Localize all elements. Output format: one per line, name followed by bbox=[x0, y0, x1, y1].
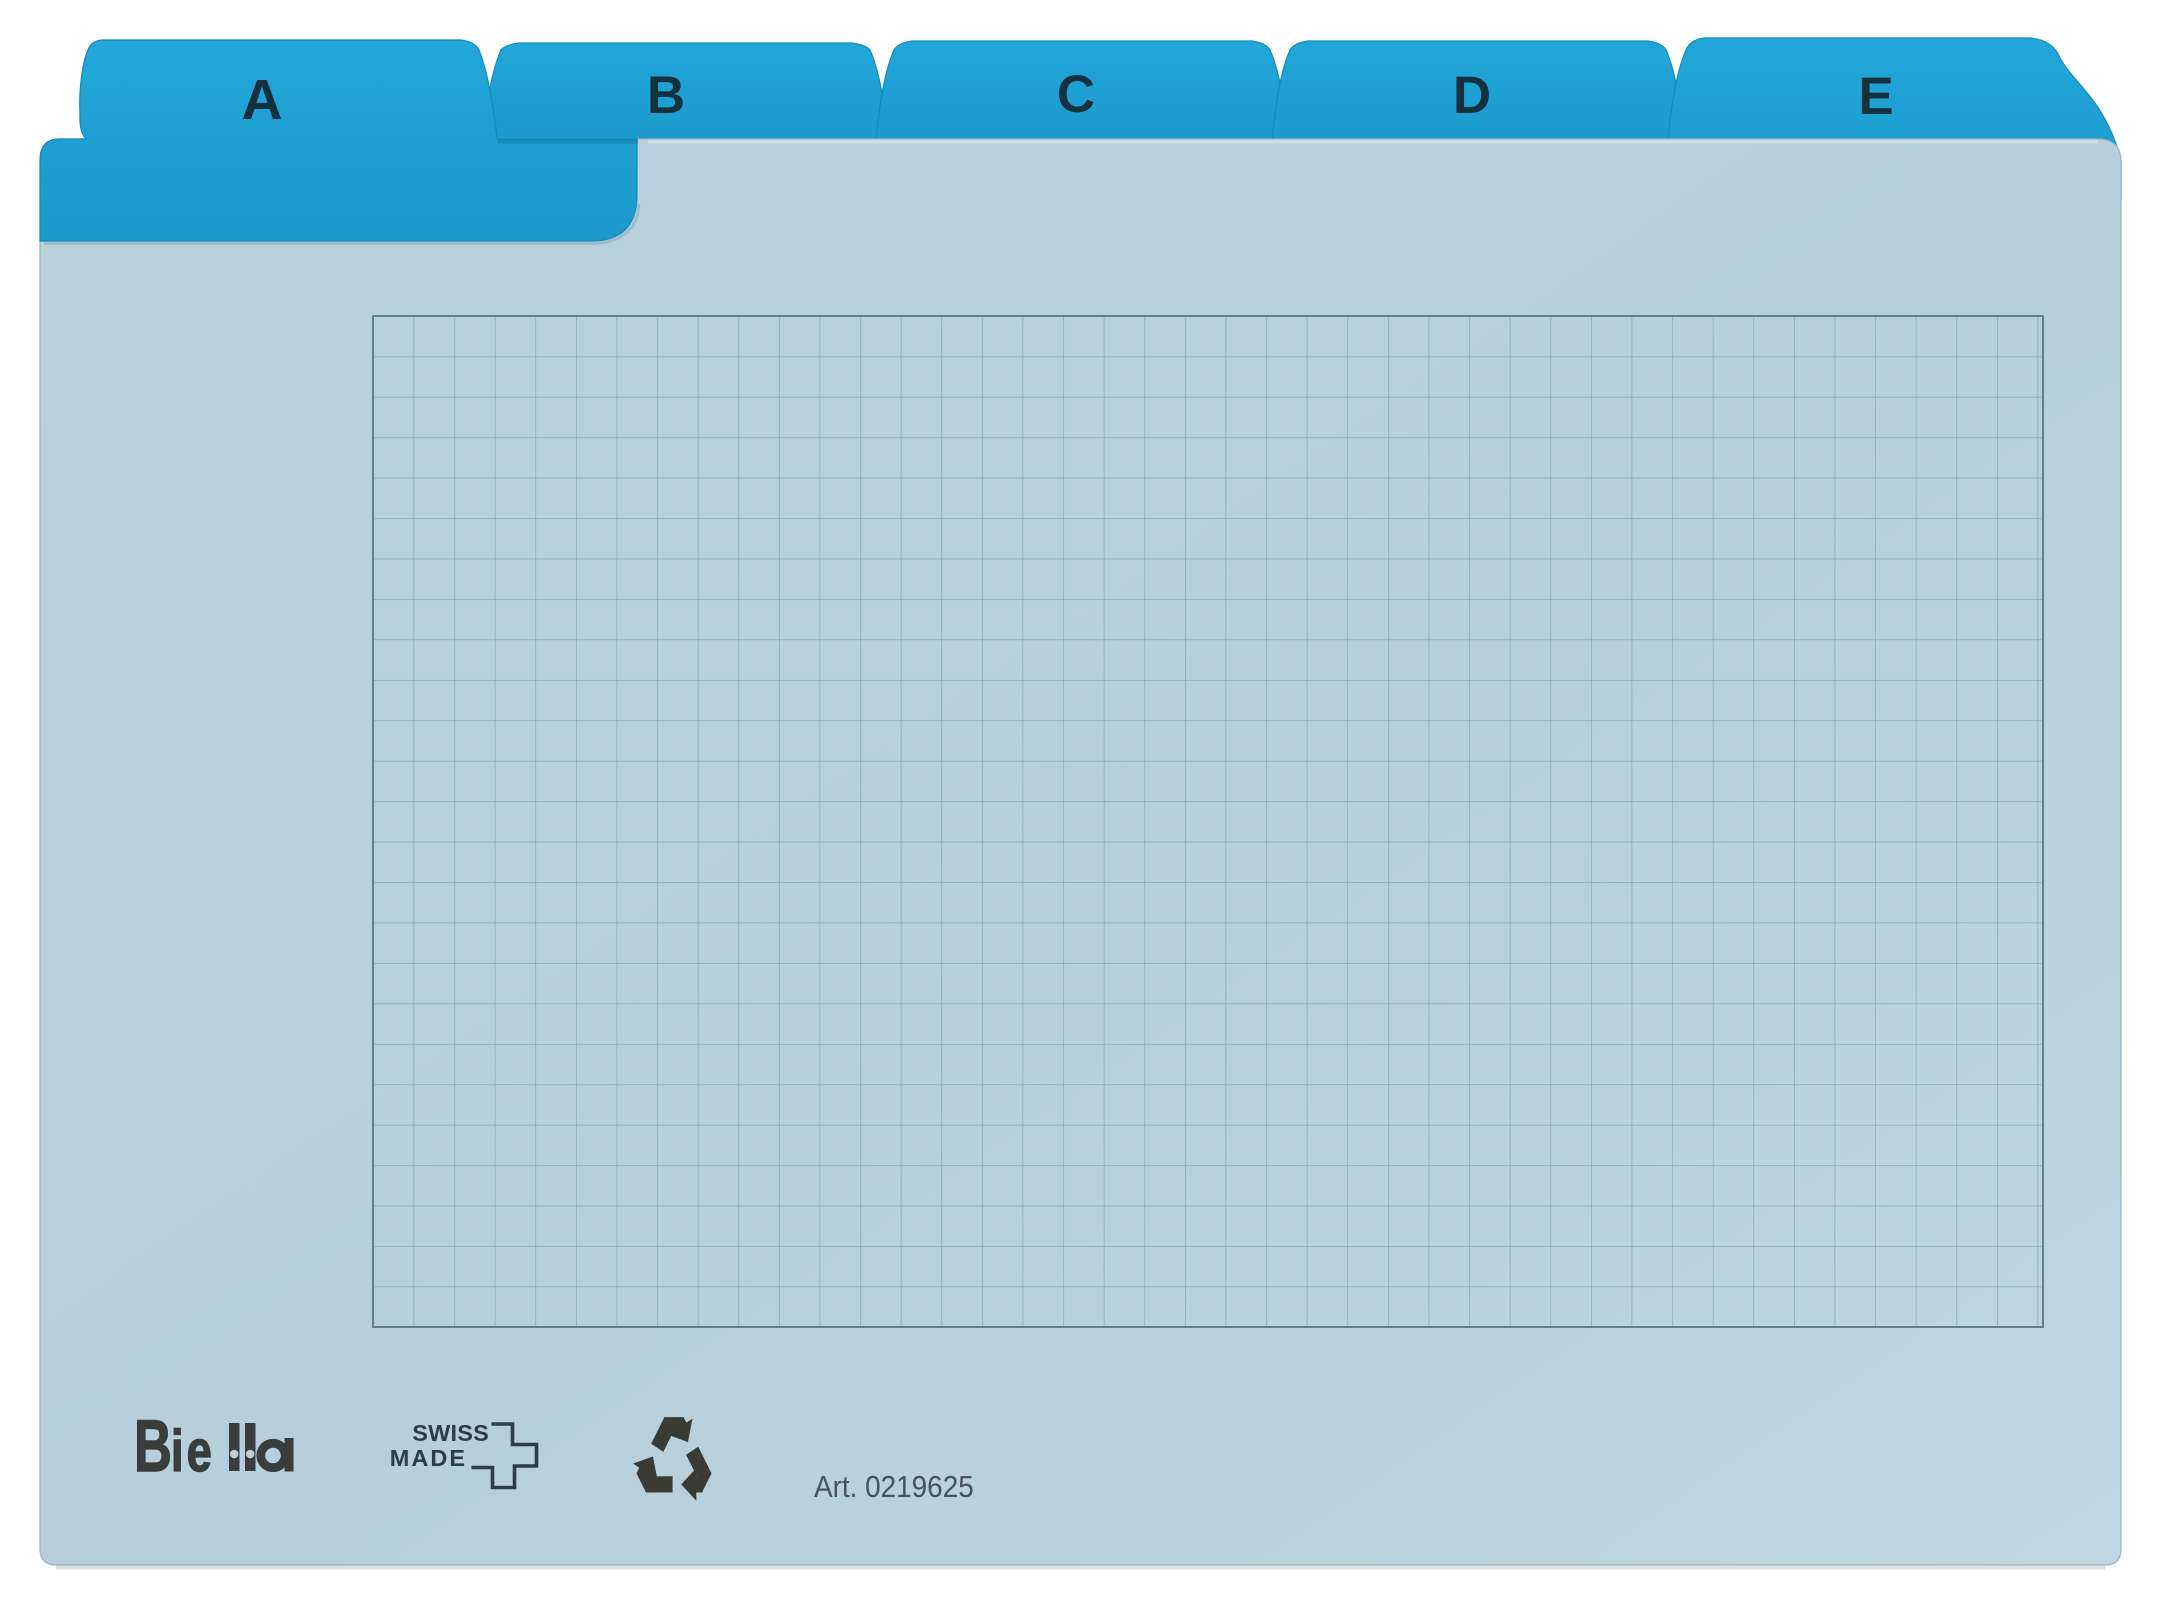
svg-text:B: B bbox=[134, 1406, 172, 1487]
svg-text:D: D bbox=[1453, 66, 1491, 125]
svg-text:E: E bbox=[1858, 67, 1893, 126]
svg-text:A: A bbox=[241, 68, 282, 132]
svg-text:Art. 0219625: Art. 0219625 bbox=[814, 1470, 974, 1505]
svg-text:MADE: MADE bbox=[390, 1445, 467, 1471]
svg-text:C: C bbox=[1057, 65, 1095, 124]
svg-text:SWISS: SWISS bbox=[412, 1420, 489, 1446]
svg-text:ie: ie bbox=[171, 1420, 215, 1485]
svg-text:B: B bbox=[647, 66, 685, 125]
